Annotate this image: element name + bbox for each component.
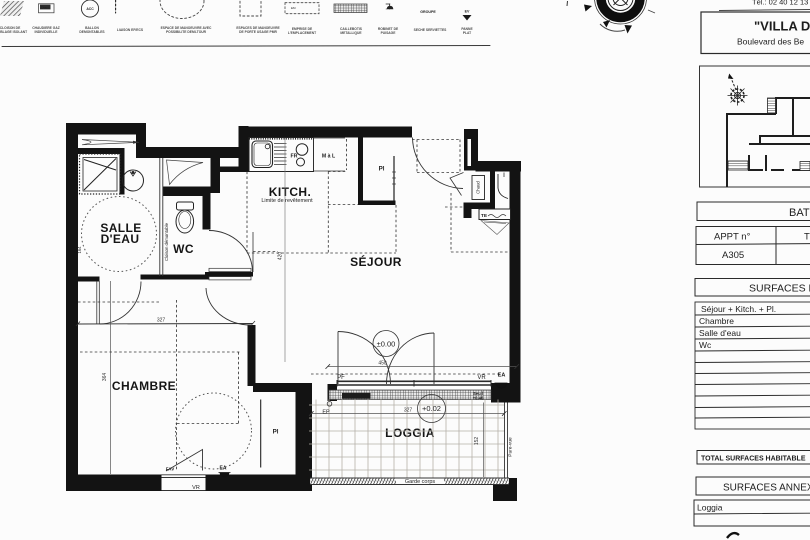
svg-text:Tél.: 02 40 12 13 1: Tél.: 02 40 12 13 1 bbox=[752, 0, 810, 7]
svg-text:APPT n°: APPT n° bbox=[714, 232, 751, 243]
svg-text:Wc: Wc bbox=[699, 340, 712, 350]
svg-text:DOUBLAGE ISOLANT: DOUBLAGE ISOLANT bbox=[0, 30, 27, 34]
svg-text:327: 327 bbox=[157, 318, 166, 324]
svg-text:SURFACES ANNEXE: SURFACES ANNEXE bbox=[723, 483, 810, 494]
svg-text:Pare-vue: Pare-vue bbox=[508, 437, 514, 457]
svg-text:DEMONTABLES: DEMONTABLES bbox=[79, 30, 105, 34]
svg-text:Chaud: Chaud bbox=[476, 181, 481, 194]
svg-text:EP: EP bbox=[322, 410, 330, 416]
svg-text:METALLIQUE: METALLIQUE bbox=[340, 31, 362, 35]
svg-text:EA: EA bbox=[498, 373, 506, 379]
svg-text:±0.00: ±0.00 bbox=[377, 340, 396, 349]
svg-text:D'EAU: D'EAU bbox=[101, 232, 140, 246]
svg-text:+0.46: +0.46 bbox=[473, 396, 484, 401]
svg-text:GROUPE: GROUPE bbox=[420, 10, 436, 14]
svg-text:Séjour + Kitch. + Pl.: Séjour + Kitch. + Pl. bbox=[701, 304, 776, 314]
svg-text:FAV: FAV bbox=[166, 467, 174, 472]
svg-text:Pl: Pl bbox=[379, 166, 385, 173]
svg-text:M à L: M à L bbox=[322, 154, 336, 160]
svg-text:PLAT: PLAT bbox=[463, 31, 471, 35]
svg-text:DE PORTE USAGE PMR: DE PORTE USAGE PMR bbox=[239, 30, 277, 34]
svg-text:PUISAGE: PUISAGE bbox=[381, 31, 397, 35]
svg-text:A305: A305 bbox=[722, 250, 744, 261]
svg-text:VR: VR bbox=[477, 375, 486, 381]
svg-text:L'EMPLACEMENT: L'EMPLACEMENT bbox=[288, 31, 316, 35]
svg-text:Salle d'eau: Salle d'eau bbox=[699, 328, 741, 338]
svg-text:364: 364 bbox=[102, 373, 108, 382]
svg-text:LOGGIA: LOGGIA bbox=[385, 426, 435, 440]
svg-text:152: 152 bbox=[474, 437, 480, 446]
svg-text:T: T bbox=[804, 232, 810, 243]
svg-text:SECHE SERVIETTES: SECHE SERVIETTES bbox=[414, 28, 448, 32]
svg-text:FR: FR bbox=[291, 154, 298, 160]
svg-text:CHAMBRE: CHAMBRE bbox=[112, 379, 176, 393]
svg-text:"VILLA D: "VILLA D bbox=[754, 19, 810, 34]
svg-text:Loggia: Loggia bbox=[697, 503, 723, 513]
svg-text:Caillebotis: Caillebotis bbox=[346, 393, 366, 398]
svg-text:KITCH.: KITCH. bbox=[269, 185, 311, 199]
svg-text:164: 164 bbox=[77, 246, 82, 254]
svg-text:WC: WC bbox=[173, 242, 194, 256]
svg-text:ACC: ACC bbox=[86, 7, 94, 11]
svg-text:SÉJOUR: SÉJOUR bbox=[350, 254, 402, 269]
svg-text:LIAISON EF/ECS: LIAISON EF/ECS bbox=[117, 28, 144, 32]
svg-text:INDIVIDUELLE: INDIVIDUELLE bbox=[35, 30, 59, 34]
svg-text:EV: EV bbox=[465, 10, 470, 14]
svg-text:TE: TE bbox=[481, 213, 488, 219]
svg-text:PF: PF bbox=[337, 375, 345, 381]
svg-text:327: 327 bbox=[404, 408, 413, 414]
svg-text:450: 450 bbox=[378, 361, 387, 367]
svg-text:420: 420 bbox=[278, 252, 284, 261]
svg-text:Garde corps: Garde corps bbox=[405, 479, 436, 485]
svg-text:VR: VR bbox=[192, 485, 200, 491]
svg-text:EA: EA bbox=[220, 466, 227, 472]
svg-text:POSSIBILITE DEMI-TOUR: POSSIBILITE DEMI-TOUR bbox=[166, 30, 207, 34]
svg-text:+0.02: +0.02 bbox=[422, 404, 441, 413]
svg-text:Limite de revêtement: Limite de revêtement bbox=[261, 198, 313, 204]
svg-text:Pl: Pl bbox=[273, 429, 279, 436]
svg-text:Cloison démontable: Cloison démontable bbox=[164, 222, 169, 261]
svg-text:EM: EM bbox=[291, 6, 296, 10]
svg-text:Chaud: Chaud bbox=[41, 5, 50, 9]
svg-text:BAT: BAT bbox=[789, 207, 810, 219]
svg-text:Chambre: Chambre bbox=[699, 316, 734, 326]
svg-text:Boulevard des Be: Boulevard des Be bbox=[737, 37, 804, 47]
svg-text:SURFACES H: SURFACES H bbox=[749, 283, 810, 295]
svg-text:TOTAL SURFACES HABITABLE: TOTAL SURFACES HABITABLE bbox=[701, 456, 806, 463]
